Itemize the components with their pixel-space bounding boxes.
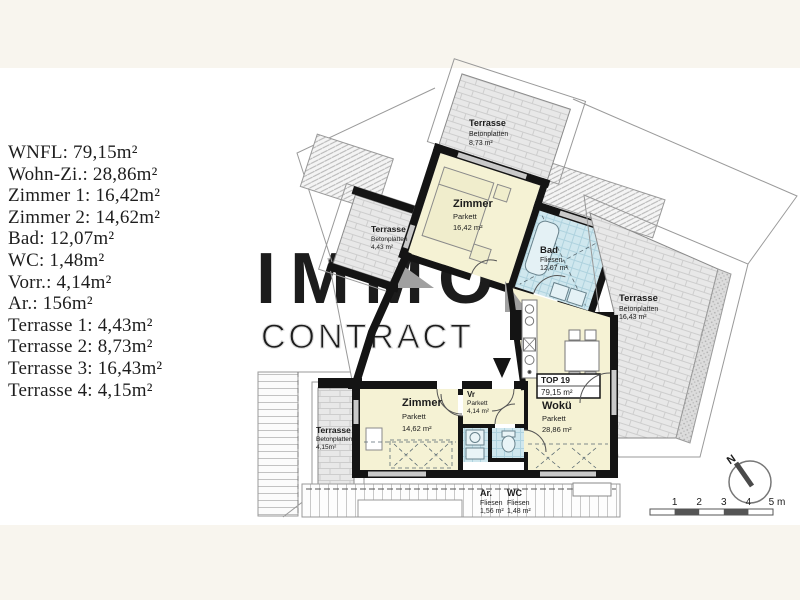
label-terrasse-top-area: 8,73 m² <box>469 140 493 147</box>
corridor-box <box>573 483 611 496</box>
label-terrasse-right-floor: Betonplatten <box>619 306 658 313</box>
label-terrasse-left-area: 4,43 m² <box>371 244 394 251</box>
label-wokue-floor: Parkett <box>542 414 567 423</box>
label-wc-floor: Fliesen <box>507 500 530 507</box>
label-bad-area: 12,07 m² <box>540 265 568 272</box>
label-vorraum-name: Vr <box>467 390 475 399</box>
label-zimmer2-floor: Parkett <box>402 412 427 421</box>
label-ar-name: Ar. <box>480 488 492 498</box>
label-bad-name: Bad <box>540 245 558 256</box>
label-terrasse-bottom-area: 4,15m² <box>316 444 337 451</box>
scale-tick-1: 1 <box>672 497 678 508</box>
label-terrasse-top-floor: Betonplatten <box>469 131 508 138</box>
entrance-arrow-icon <box>493 358 511 378</box>
label-zimmer1-floor: Parkett <box>453 212 478 221</box>
label-terrasse-right-area: 16,43 m² <box>619 314 647 321</box>
outer-stair-strip <box>258 372 298 516</box>
desk <box>366 428 382 450</box>
floorplan-sheet: WNFL: 79,15m² Wohn-Zi.: 28,86m² Zimmer 1… <box>0 0 800 600</box>
label-wokue-name: Wokü <box>542 400 572 412</box>
label-terrasse-left-name: Terrasse <box>371 224 406 234</box>
scale-bar: 1 2 3 4 5 m <box>650 497 785 515</box>
scale-tick-2: 2 <box>696 497 702 508</box>
label-zimmer2-area: 14,62 m² <box>402 424 432 433</box>
label-bad-floor: Fliesen <box>540 257 563 264</box>
label-wokue-area: 28,86 m² <box>542 425 572 434</box>
label-terrasse-left-floor: Betonplatten <box>371 236 408 243</box>
label-ar-floor: Fliesen <box>480 500 503 507</box>
compass-icon: N <box>725 453 771 503</box>
label-terrasse-top-name: Terrasse <box>469 118 506 128</box>
label-terrasse-right-name: Terrasse <box>619 293 658 304</box>
kitchen-counter <box>522 300 537 378</box>
label-vorraum-area: 4,14 m² <box>467 408 490 415</box>
label-vorraum-floor: Parkett <box>467 400 488 407</box>
unit-label-title: TOP 19 <box>541 375 570 385</box>
label-wc-area: 1,48 m² <box>507 508 531 515</box>
unit-label-area: 79,15 m² <box>541 388 573 397</box>
label-terrasse-bottom-name: Terrasse <box>316 425 351 435</box>
corridor-step <box>358 500 462 517</box>
label-terrasse-bottom-floor: Betonplatten <box>316 436 353 443</box>
label-zimmer1-name: Zimmer <box>453 198 493 210</box>
scale-end-label: 5 m <box>769 497 786 508</box>
label-zimmer1-area: 16,42 m² <box>453 223 483 232</box>
label-ar-area: 1,56 m² <box>480 508 504 515</box>
label-wc-name: WC <box>507 488 522 498</box>
scale-tick-4: 4 <box>746 497 752 508</box>
scale-tick-3: 3 <box>721 497 727 508</box>
label-zimmer2-name: Zimmer <box>402 397 442 409</box>
floor-plan-drawing: IMMO CONTRACT <box>0 0 800 600</box>
